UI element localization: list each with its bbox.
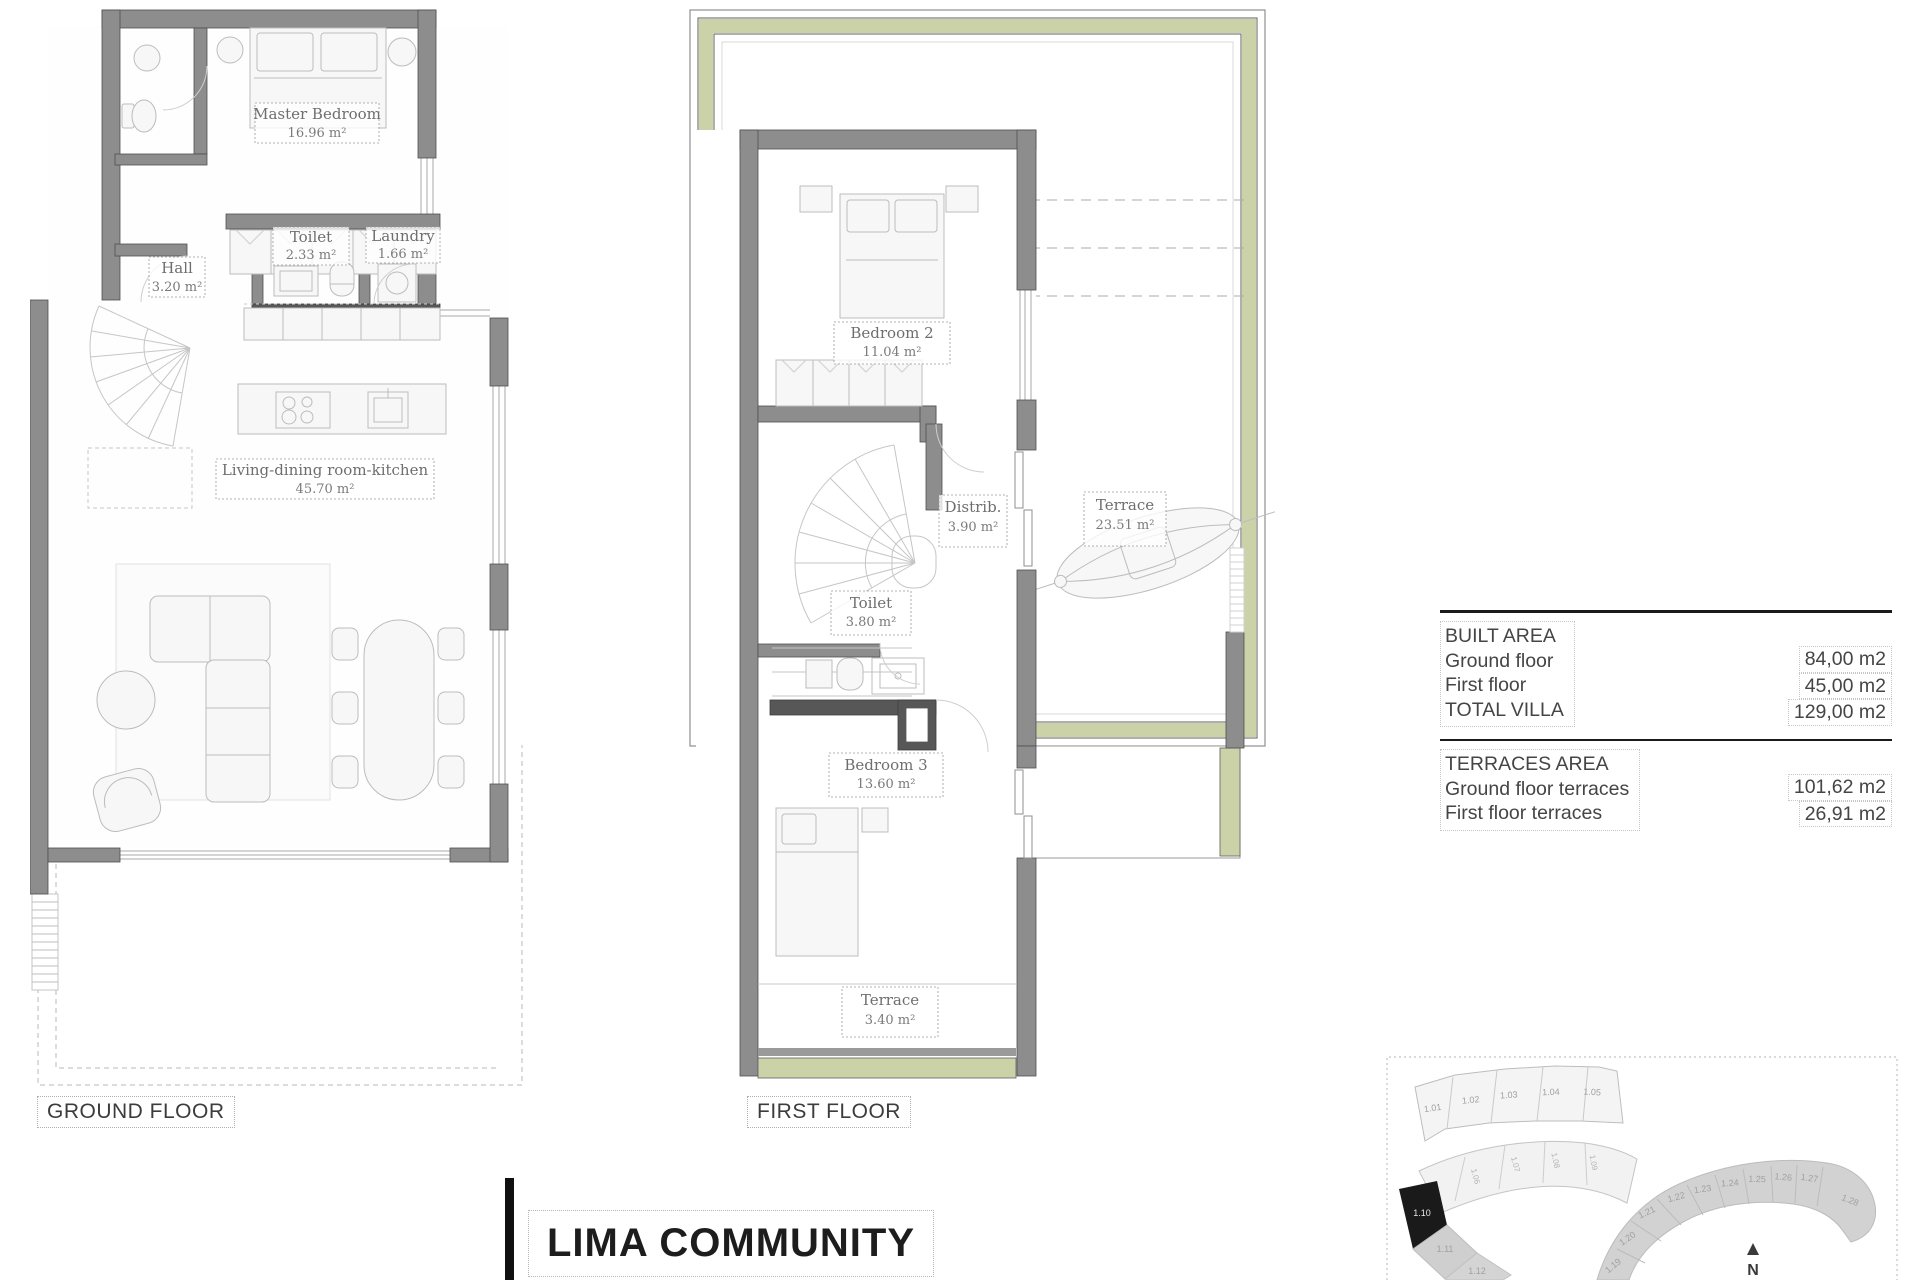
ground-floor-drawing: Master Bedroom 16.96 m² Toilet 2.33 m² L… (30, 8, 545, 1093)
site-map: 1.01 1.02 1.03 1.04 1.05 1.06 1.07 1.08 … (1385, 1053, 1907, 1280)
plan-sheet: Master Bedroom 16.96 m² Toilet 2.33 m² L… (0, 0, 1920, 1280)
terraces-area-labels: TERRACES AREA Ground floor terraces Firs… (1440, 749, 1640, 831)
distrib-area: 3.90 m² (948, 520, 999, 535)
terrace-small-area: 3.40 m² (865, 1013, 916, 1028)
ground-toilet-fixtures (274, 262, 354, 296)
master-bedroom-label: Master Bedroom (253, 105, 381, 123)
built-area-values: 84,00 m2 45,00 m2 129,00 m2 (1788, 621, 1892, 727)
plot-label: 1.24 (1721, 1178, 1739, 1189)
living-room-area: 45.70 m² (296, 482, 355, 497)
plot-group-right: 1.19 1.20 1.21 1.22 1.23 1.24 1.25 1.26 … (1597, 1160, 1876, 1280)
north-arrow-icon (1747, 1243, 1759, 1255)
first-floor-caption: FIRST FLOOR (747, 1096, 911, 1128)
plot-label: 1.02 (1461, 1094, 1479, 1106)
master-bedroom-area: 16.96 m² (288, 126, 347, 141)
kitchen-island (238, 384, 446, 434)
terraces-row-label: First floor terraces (1445, 801, 1629, 826)
distrib-label: Distrib. (945, 498, 1002, 516)
plot-label: 1.26 (1774, 1171, 1792, 1182)
terraces-area-header: TERRACES AREA (1445, 752, 1629, 777)
title-divider-bar (505, 1178, 514, 1280)
terrace-hatch-strip (1230, 548, 1244, 632)
north-label: N (1747, 1262, 1759, 1279)
ff-toilet-label: Toilet (850, 594, 892, 612)
nightstand-left (217, 37, 243, 63)
laundry-machine (374, 264, 416, 304)
built-row-label: TOTAL VILLA (1445, 698, 1564, 723)
north-indicator: N (1747, 1243, 1759, 1279)
sofa (206, 660, 270, 802)
built-row-value: 129,00 m2 (1788, 699, 1892, 726)
terraces-area-values: 101,62 m2 26,91 m2 (1788, 749, 1892, 831)
ff-toilet-area: 3.80 m² (846, 615, 897, 630)
first-floor-plan: Bedroom 2 11.04 m² Distrib. 3.90 m² Terr… (610, 8, 1275, 1083)
area-table: BUILT AREA Ground floor First floor TOTA… (1440, 610, 1892, 843)
plot-label-highlighted: 1.10 (1413, 1208, 1431, 1218)
terraces-row-value: 26,91 m2 (1799, 801, 1892, 828)
built-area-labels: BUILT AREA Ground floor First floor TOTA… (1440, 621, 1575, 727)
terraces-area-section: TERRACES AREA Ground floor terraces Firs… (1440, 749, 1892, 831)
plot-label: 1.04 (1542, 1087, 1560, 1098)
bedroom2-area: 11.04 m² (863, 345, 922, 360)
first-bottom-terrace (758, 1048, 1016, 1078)
first-floor-drawing: Bedroom 2 11.04 m² Distrib. 3.90 m² Terr… (610, 8, 1275, 1083)
gf-toilet-label: Toilet (290, 228, 332, 246)
dining-table (364, 620, 434, 800)
built-area-section: BUILT AREA Ground floor First floor TOTA… (1440, 621, 1892, 727)
terraces-row-label: Ground floor terraces (1445, 777, 1629, 802)
terrace-label: Terrace (1096, 496, 1154, 514)
built-row-value: 84,00 m2 (1799, 646, 1892, 673)
plot-row-top: 1.01 1.02 1.03 1.04 1.05 (1415, 1066, 1623, 1141)
terrace-area: 23.51 m² (1096, 518, 1155, 533)
ground-floor-plan: Master Bedroom 16.96 m² Toilet 2.33 m² L… (30, 8, 545, 1093)
coffee-table (97, 671, 155, 729)
plot-label: 1.12 (1468, 1266, 1486, 1276)
living-room-label: Living-dining room-kitchen (222, 461, 429, 479)
built-row-value: 45,00 m2 (1799, 673, 1892, 700)
plot-row-middle: 1.06 1.07 1.08 1.09 (1419, 1141, 1637, 1213)
plot-label: 1.11 (1437, 1244, 1454, 1254)
built-row-label: Ground floor (1445, 649, 1564, 674)
bedroom3-label: Bedroom 3 (844, 756, 927, 774)
site-map-drawing: 1.01 1.02 1.03 1.04 1.05 1.06 1.07 1.08 … (1385, 1053, 1907, 1280)
hall-area: 3.20 m² (152, 280, 203, 295)
built-row-label: First floor (1445, 673, 1564, 698)
terraces-row-value: 101,62 m2 (1788, 774, 1892, 801)
laundry-area: 1.66 m² (378, 247, 429, 262)
table-rule-mid (1440, 739, 1892, 741)
gf-toilet-area: 2.33 m² (286, 248, 337, 263)
ground-floor-caption: GROUND FLOOR (37, 1096, 235, 1128)
annex-green-band (1220, 748, 1240, 856)
plot-label: 1.25 (1748, 1174, 1766, 1185)
nightstand-right (388, 38, 416, 66)
ground-exterior-stair-hatch (32, 894, 58, 990)
plot-label: 1.03 (1500, 1089, 1518, 1100)
bedroom3-area: 13.60 m² (857, 777, 916, 792)
community-title: LIMA COMMUNITY (528, 1210, 934, 1277)
plot-label: 1.05 (1583, 1087, 1601, 1098)
bedroom2-label: Bedroom 2 (850, 324, 933, 342)
laundry-label: Laundry (371, 227, 435, 245)
hall-label: Hall (161, 259, 193, 277)
terrace-small-label: Terrace (861, 991, 919, 1009)
built-area-header: BUILT AREA (1445, 624, 1564, 649)
table-rule-top (1440, 610, 1892, 613)
